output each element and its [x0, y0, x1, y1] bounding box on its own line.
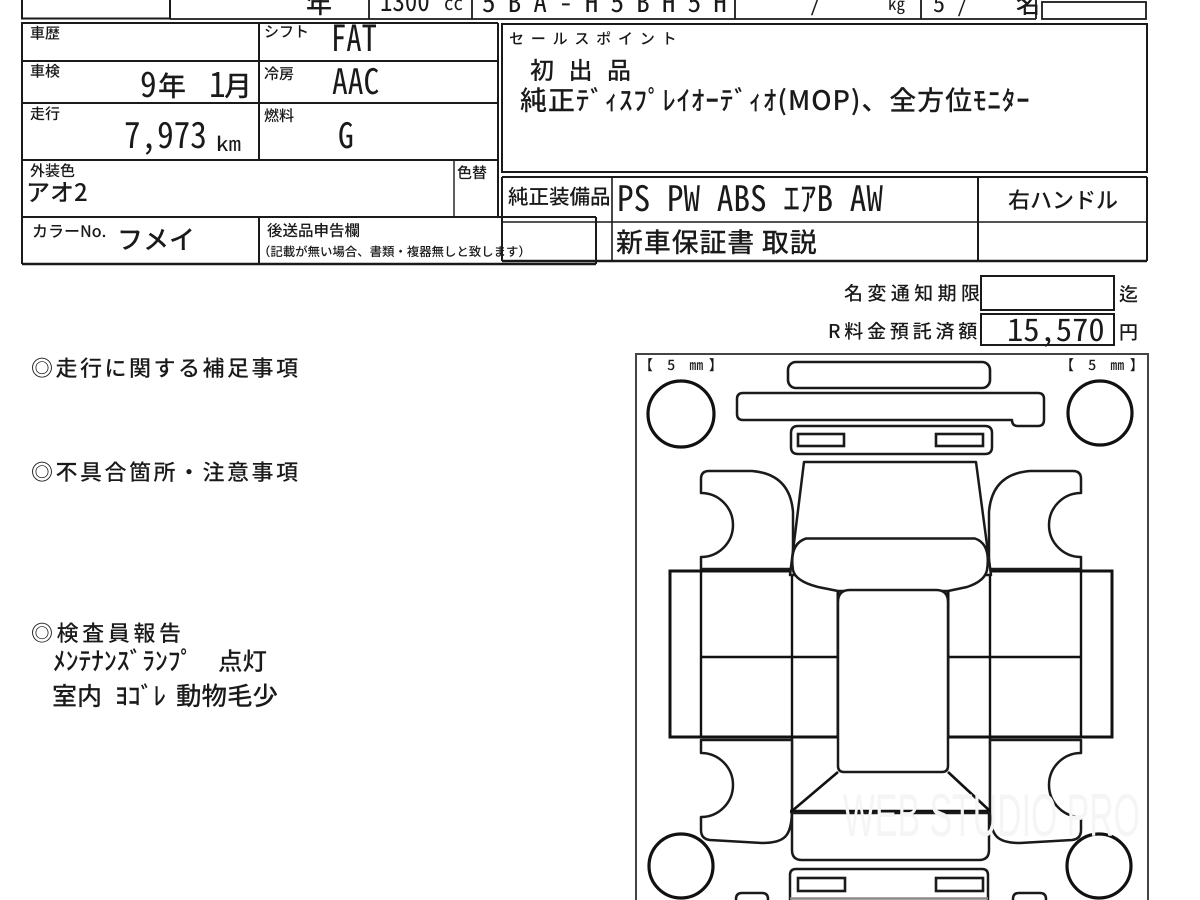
svg-text:WEB STUDIO PRO: WEB STUDIO PRO: [843, 782, 1140, 849]
